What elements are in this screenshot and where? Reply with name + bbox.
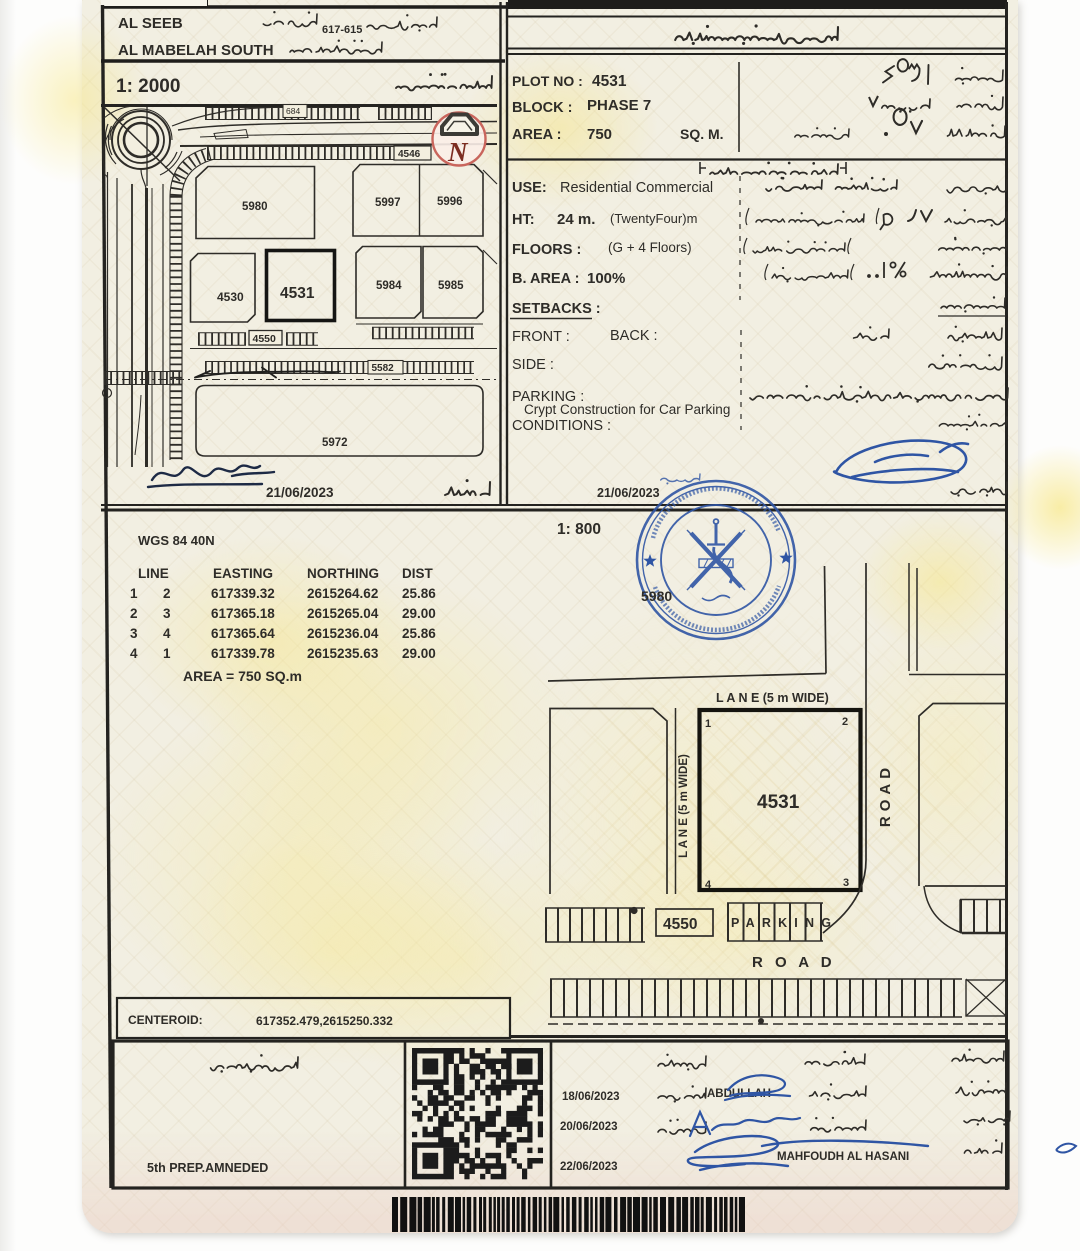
svg-text:L A N E (5 m WIDE): L A N E (5 m WIDE)	[716, 691, 829, 705]
svg-text:AL MABELAH SOUTH: AL MABELAH SOUTH	[118, 42, 274, 59]
svg-text:4531: 4531	[592, 73, 627, 90]
svg-text:4531: 4531	[757, 792, 800, 813]
svg-text:4531: 4531	[280, 285, 315, 302]
svg-text:22/06/2023: 22/06/2023	[560, 1161, 618, 1173]
svg-text:750: 750	[587, 126, 612, 143]
svg-text:FRONT :: FRONT :	[512, 329, 570, 345]
svg-text:NORTHING: NORTHING	[307, 566, 379, 581]
svg-text:5980: 5980	[242, 201, 268, 213]
svg-text:2: 2	[130, 606, 138, 621]
svg-text:2615235.63: 2615235.63	[307, 646, 379, 661]
svg-text:20/06/2023: 20/06/2023	[560, 1121, 618, 1133]
svg-text:5985: 5985	[438, 280, 464, 292]
svg-text:684: 684	[286, 106, 300, 116]
svg-text:CENTEROID:: CENTEROID:	[128, 1013, 203, 1027]
svg-text:SIDE :: SIDE :	[512, 357, 554, 373]
svg-text:BACK :: BACK :	[610, 328, 658, 344]
svg-text:MAHFOUDH AL HASANI: MAHFOUDH AL HASANI	[777, 1151, 909, 1163]
svg-text:4: 4	[705, 879, 712, 891]
svg-text:4546: 4546	[398, 149, 421, 160]
svg-text:617-615: 617-615	[322, 24, 362, 36]
svg-text:25.86: 25.86	[402, 586, 436, 601]
svg-text:LINE: LINE	[138, 566, 169, 581]
svg-text:4: 4	[163, 626, 171, 641]
svg-text:1: 2000: 1: 2000	[116, 76, 180, 97]
svg-text:25.86: 25.86	[402, 626, 436, 641]
svg-text:2615264.62: 2615264.62	[307, 586, 378, 601]
svg-text:617352.479,2615250.332: 617352.479,2615250.332	[256, 1014, 393, 1028]
svg-text:617339.32: 617339.32	[211, 586, 275, 601]
svg-text:2: 2	[842, 716, 848, 728]
svg-text:(TwentyFour)m: (TwentyFour)m	[610, 211, 697, 226]
svg-text:617339.78: 617339.78	[211, 646, 275, 661]
svg-text:617365.64: 617365.64	[211, 626, 275, 641]
svg-text:CONDITIONS :: CONDITIONS :	[512, 418, 611, 434]
svg-text:3: 3	[163, 606, 171, 621]
svg-text:PHASE 7: PHASE 7	[587, 97, 651, 114]
svg-text:24 m.: 24 m.	[557, 211, 595, 228]
svg-text:Residential Commercial: Residential Commercial	[560, 180, 713, 196]
svg-text:1: 1	[130, 586, 138, 601]
svg-text:5th PREP.AMNEDED: 5th PREP.AMNEDED	[147, 1161, 268, 1175]
svg-text:617365.18: 617365.18	[211, 606, 275, 621]
svg-text:4530: 4530	[217, 290, 244, 304]
svg-text:AREA = 750 SQ.m: AREA = 750 SQ.m	[183, 668, 302, 684]
svg-text:1: 1	[163, 646, 171, 661]
svg-text:4: 4	[130, 646, 138, 661]
svg-text:USE:: USE:	[512, 180, 547, 196]
svg-text:R O A D: R O A D	[752, 954, 836, 971]
svg-text:5997: 5997	[375, 197, 401, 209]
svg-text:DIST: DIST	[402, 566, 434, 581]
svg-text:2615236.04: 2615236.04	[307, 626, 379, 641]
svg-text:AL SEEB: AL SEEB	[118, 15, 183, 32]
svg-text:4550: 4550	[663, 916, 697, 933]
svg-text:(G + 4 Floors): (G + 4 Floors)	[608, 240, 692, 255]
svg-text:SQ. M.: SQ. M.	[680, 126, 724, 142]
svg-text:29.00: 29.00	[402, 646, 436, 661]
svg-text:EASTING: EASTING	[213, 566, 273, 581]
svg-text:100%: 100%	[587, 270, 625, 287]
svg-text:HT:: HT:	[512, 212, 535, 228]
svg-text:SETBACKS :: SETBACKS :	[512, 301, 601, 317]
svg-text:29.00: 29.00	[402, 606, 436, 621]
svg-text:4550: 4550	[253, 333, 277, 345]
svg-text:3: 3	[130, 626, 138, 641]
svg-text:3: 3	[843, 877, 849, 889]
svg-text:FLOORS :: FLOORS :	[512, 242, 581, 258]
svg-text:18/06/2023: 18/06/2023	[562, 1091, 620, 1103]
svg-text:PLOT NO :: PLOT NO :	[512, 73, 583, 89]
svg-text:2615265.04: 2615265.04	[307, 606, 379, 621]
svg-text:5984: 5984	[376, 280, 402, 292]
svg-text:5980: 5980	[641, 588, 672, 604]
svg-text:ROAD: ROAD	[877, 763, 894, 827]
svg-text:AREA :: AREA :	[512, 127, 561, 143]
svg-text:1: 800: 1: 800	[557, 521, 601, 538]
svg-text:21/06/2023: 21/06/2023	[597, 486, 660, 500]
svg-text:1: 1	[705, 718, 711, 730]
svg-text:5582: 5582	[372, 363, 395, 374]
svg-text:PARKING: PARKING	[731, 916, 838, 930]
svg-text:WGS 84 40N: WGS 84 40N	[138, 533, 215, 548]
svg-text:N: N	[447, 137, 469, 167]
svg-text:21/06/2023: 21/06/2023	[266, 485, 334, 500]
svg-text:5996: 5996	[437, 196, 463, 208]
svg-text:L A N E (5 m WIDE): L A N E (5 m WIDE)	[678, 754, 690, 858]
svg-text:B. AREA :: B. AREA :	[512, 271, 579, 287]
svg-text:2: 2	[163, 586, 171, 601]
svg-text:Crypt Construction for Car Par: Crypt Construction for Car Parking	[524, 402, 730, 417]
svg-text:BLOCK :: BLOCK :	[512, 100, 572, 116]
svg-text:5972: 5972	[322, 437, 348, 449]
